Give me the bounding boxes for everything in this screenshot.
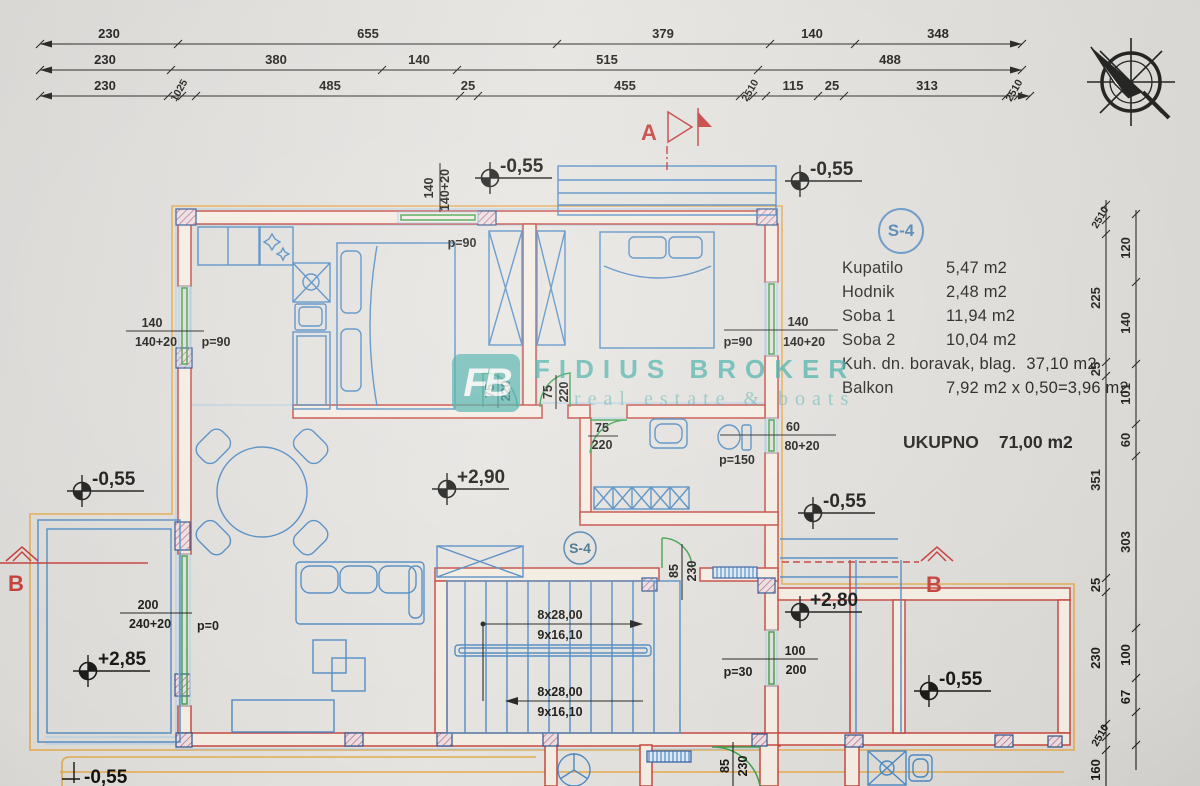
door-size: 75 220 [483, 374, 513, 408]
section-b-label: B [926, 572, 942, 597]
legend-row: Hodnik2,48 m2 [842, 280, 1102, 304]
dim-label: 655 [357, 26, 379, 41]
dim-label: 25 [825, 78, 839, 93]
dim-label: 1025 [168, 77, 190, 103]
radiator [647, 751, 691, 762]
dim-label: 485 [319, 78, 341, 93]
legend-row: Kupatilo5,47 m2 [842, 256, 1102, 280]
dim-label: 303 [1118, 531, 1133, 553]
unit-badge-plan: S-4 [564, 532, 596, 564]
dim-label: 379 [652, 26, 674, 41]
window-sill: p=0 [197, 619, 219, 633]
dim-label: 455 [614, 78, 636, 93]
dim-label: 25 [1088, 578, 1103, 592]
elevation-label: -0,55 [500, 156, 544, 177]
stair-run: 9x16,10 [537, 705, 582, 719]
elevation-label: -0,55 [84, 767, 128, 786]
window-size: 80+20 [784, 439, 819, 453]
window-sill: p=30 [724, 665, 753, 679]
dim-label: 515 [596, 52, 618, 67]
section-marker-b-left: B [0, 547, 148, 596]
elevation-label: +2,85 [98, 649, 147, 670]
sofa [296, 562, 424, 624]
dim-label: 67 [1118, 690, 1133, 704]
window-size: 140 [422, 178, 436, 199]
elevation-label: +2,90 [457, 467, 505, 488]
window-size: 200 [786, 663, 807, 677]
section-a-label: A [641, 120, 657, 145]
legend-row: Balkon7,92 m2 x 0,50=3,96 m2 [842, 376, 1102, 400]
kitchen-counter [198, 227, 260, 265]
door-size: 75 220 [588, 421, 618, 452]
window-size: 140+20 [783, 335, 825, 349]
small-sink [909, 755, 932, 781]
side-table [313, 640, 346, 673]
stairs-annotation: 8x28,00 9x16,10 8x28,00 9x16,10 [481, 608, 644, 719]
svg-text:230: 230 [736, 756, 750, 777]
legend-row: Soba 210,04 m2 [842, 328, 1102, 352]
svg-text:220: 220 [592, 438, 613, 452]
dim-label: 2510 [739, 77, 761, 103]
window-size: 140+20 [135, 335, 177, 349]
window-size: 200 [138, 598, 159, 612]
dim-label: 2510 [1003, 77, 1025, 103]
dim-label: 25 [461, 78, 475, 93]
dimension-chain-top: 230 655 379 140 348 230 380 140 515 488 … [36, 26, 1034, 104]
window-size: 140+20 [438, 169, 452, 211]
window-sill: p=150 [719, 453, 755, 467]
bed-soba2 [600, 232, 714, 348]
door-size: 85 230 [667, 561, 699, 582]
elevation-label: -0,55 [939, 669, 983, 690]
svg-text:85: 85 [718, 759, 732, 773]
compass-icon [1087, 38, 1175, 126]
stair-run: 8x28,00 [537, 608, 582, 622]
shower-tray [868, 751, 906, 785]
door-size: 85 230 [718, 756, 750, 777]
elevation-label: -0,55 [92, 469, 136, 490]
finish-lines [45, 209, 777, 749]
elevation-label: +2,80 [810, 590, 858, 611]
dim-label: 100 [1118, 644, 1133, 666]
window-sill: p=90 [202, 335, 231, 349]
window-size: 60 [786, 420, 800, 434]
legend-row: Soba 111,94 m2 [842, 304, 1102, 328]
svg-text:75: 75 [541, 385, 555, 399]
svg-text:S-4: S-4 [569, 540, 591, 556]
dim-label: 140 [801, 26, 823, 41]
dim-label: 60 [1118, 433, 1133, 447]
area-legend: Kupatilo5,47 m2 Hodnik2,48 m2 Soba 111,9… [842, 256, 1102, 400]
dim-label: 120 [1118, 237, 1133, 259]
svg-text:85: 85 [667, 564, 681, 578]
radiator [713, 567, 757, 578]
section-marker-a: A [641, 108, 712, 170]
toilet [718, 425, 740, 449]
dim-label: 140 [1118, 312, 1133, 334]
dim-label: 230 [1088, 647, 1103, 669]
svg-text:230: 230 [685, 561, 699, 582]
dim-label: 115 [783, 78, 804, 93]
entry-steps [558, 166, 776, 215]
balcony [38, 520, 180, 742]
window-sill: p=90 [724, 335, 753, 349]
windows-layer [179, 212, 777, 706]
washer-symbol [558, 753, 590, 786]
dim-label: 488 [879, 52, 901, 67]
side-table [332, 658, 365, 691]
stair-run: 9x16,10 [537, 628, 582, 642]
dim-label: 230 [98, 26, 120, 41]
unit-badge-legend: S-4 [878, 208, 924, 254]
terrace-lines [780, 539, 901, 733]
window-size: 140 [788, 315, 809, 329]
section-b-label: B [8, 571, 24, 596]
legend-total: UKUPNO71,00 m2 [903, 432, 1073, 453]
sideboard [232, 700, 334, 732]
dim-label: 230 [94, 52, 116, 67]
svg-text:220: 220 [499, 381, 513, 402]
stove [259, 227, 293, 265]
svg-text:220: 220 [557, 382, 571, 403]
dim-label: 348 [927, 26, 949, 41]
floor-plan-photo: 230 655 379 140 348 230 380 140 515 488 … [0, 0, 1200, 786]
stair-run: 8x28,00 [537, 685, 582, 699]
dim-label: 230 [94, 78, 116, 93]
dining-table [192, 425, 331, 558]
svg-text:75: 75 [483, 384, 497, 398]
elevation-label: -0,55 [810, 159, 854, 180]
door-size: 75 220 [541, 375, 571, 409]
window-size: 140 [142, 316, 163, 330]
dim-label: 351 [1088, 469, 1103, 491]
dim-label: 140 [408, 52, 430, 67]
bed-soba1 [337, 243, 455, 409]
legend-row: Kuh. dn. boravak, blag.37,10 m2 [842, 352, 1102, 376]
window-sill: p=90 [448, 236, 477, 250]
dim-label: 313 [916, 78, 938, 93]
window-size: 100 [785, 644, 806, 658]
window-size: 240+20 [129, 617, 171, 631]
dim-label: 380 [265, 52, 287, 67]
elevation-label: -0,55 [823, 491, 867, 512]
dim-label: 160 [1088, 759, 1103, 781]
svg-text:75: 75 [595, 421, 609, 435]
